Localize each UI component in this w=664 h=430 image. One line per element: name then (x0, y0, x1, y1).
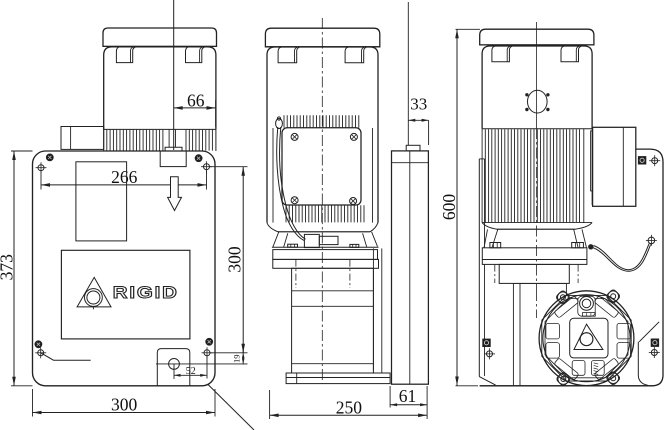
svg-text:33: 33 (410, 94, 427, 113)
svg-text:300: 300 (111, 395, 138, 415)
svg-text:61: 61 (399, 386, 417, 406)
svg-text:373: 373 (0, 254, 16, 281)
svg-text:250: 250 (336, 397, 363, 417)
svg-text:52: 52 (186, 366, 196, 377)
svg-text:300: 300 (225, 246, 245, 272)
svg-text:600: 600 (439, 194, 459, 221)
svg-text:266: 266 (111, 167, 138, 187)
svg-text:RIGID: RIGID (113, 284, 179, 302)
svg-text:66: 66 (187, 90, 205, 110)
svg-text:19: 19 (232, 355, 242, 364)
